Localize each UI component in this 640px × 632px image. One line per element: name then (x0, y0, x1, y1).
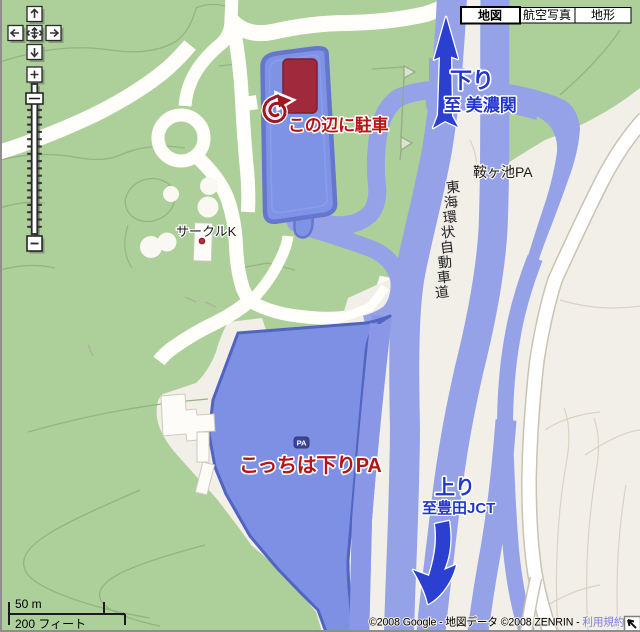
svg-text:地図: 地図 (478, 8, 502, 23)
svg-text:鞍ヶ池PA: 鞍ヶ池PA (473, 164, 533, 180)
svg-text:この辺に駐車: この辺に駐車 (288, 115, 388, 135)
svg-text:こっちは下りPA: こっちは下りPA (239, 455, 382, 477)
svg-text:道: 道 (434, 283, 450, 301)
svg-text:50 m: 50 m (15, 597, 42, 611)
svg-text:航空写真: 航空写真 (523, 7, 571, 22)
svg-text:至 美濃関: 至 美濃関 (444, 95, 517, 115)
svg-text:上り: 上り (435, 476, 475, 499)
svg-text:至豊田JCT: 至豊田JCT (422, 499, 495, 517)
svg-text:PA: PA (297, 439, 307, 448)
svg-text:地形: 地形 (591, 8, 615, 22)
svg-text:下り: 下り (450, 68, 494, 93)
svg-text:サークルK: サークルK (176, 224, 237, 239)
svg-text:©2008 Google - 地図データ ©2008 ZEN: ©2008 Google - 地図データ ©2008 ZENRIN - 利用規約 (369, 616, 624, 629)
svg-text:200 フィート: 200 フィート (15, 617, 86, 631)
